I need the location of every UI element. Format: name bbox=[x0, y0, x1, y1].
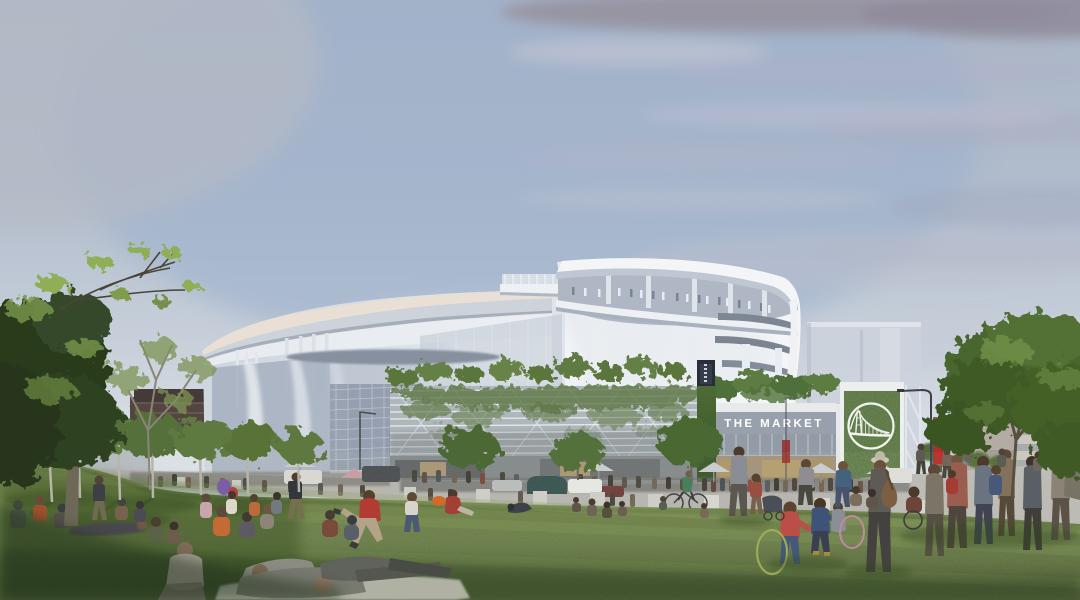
svg-text:THE MARKET: THE MARKET bbox=[724, 418, 823, 430]
